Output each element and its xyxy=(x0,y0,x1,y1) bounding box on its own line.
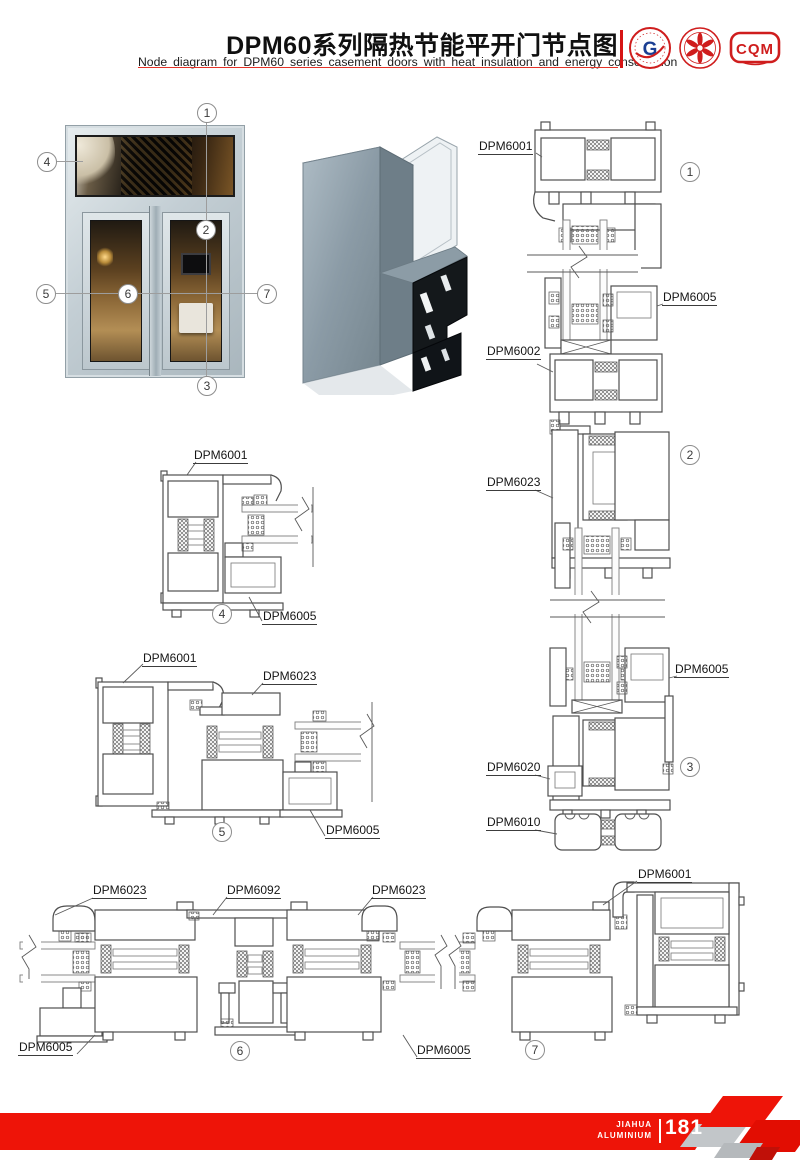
label-h-dpm6005-left: DPM6005 xyxy=(18,1041,73,1056)
brand-line2: ALUMINIUM xyxy=(548,1130,652,1141)
center-stile xyxy=(149,206,161,376)
lattice-ceiling-detail xyxy=(121,137,193,195)
right-door-panel xyxy=(162,212,230,370)
section-callout-3: 3 xyxy=(680,757,700,777)
section-callout-5: 5 xyxy=(212,822,232,842)
detail-5-drawing xyxy=(85,650,405,850)
label-d4-dpm6005: DPM6005 xyxy=(262,610,317,625)
door-overview-photo xyxy=(65,125,245,378)
cqm-logo-text: CQM xyxy=(736,41,774,58)
cqm-logo-icon: CQM xyxy=(728,26,782,70)
label-d5-dpm6005: DPM6005 xyxy=(325,824,380,839)
callout-2: 2 xyxy=(196,220,216,240)
section-callout-4: 4 xyxy=(212,604,232,624)
label-dpm6002: DPM6002 xyxy=(486,345,541,360)
label-dpm6010: DPM6010 xyxy=(486,816,541,831)
left-door-panel xyxy=(82,212,150,370)
profile-3d-render xyxy=(285,125,475,395)
callout-3: 3 xyxy=(197,376,217,396)
callout-line-horizontal xyxy=(56,293,257,294)
label-h-dpm6092: DPM6092 xyxy=(226,884,281,899)
section-callout-1: 1 xyxy=(680,162,700,182)
brand-line1: JIAHUA xyxy=(548,1119,652,1130)
label-d5-dpm6023: DPM6023 xyxy=(262,670,317,685)
label-d4-dpm6001: DPM6001 xyxy=(193,449,248,464)
label-dpm6005-upper: DPM6005 xyxy=(662,291,717,306)
callout-line-4 xyxy=(57,161,83,162)
label-h-dpm6005-right: DPM6005 xyxy=(416,1044,471,1059)
cabinet-detail xyxy=(179,303,213,333)
callout-7: 7 xyxy=(257,284,277,304)
brand-text: JIAHUA ALUMINIUM xyxy=(548,1119,652,1141)
label-dpm6005-lower: DPM6005 xyxy=(674,663,729,678)
ctc-logo-icon: G xyxy=(628,26,672,70)
section-callout-2: 2 xyxy=(680,445,700,465)
transom-glass xyxy=(75,135,235,197)
label-dpm6020: DPM6020 xyxy=(486,761,541,776)
chandelier-detail xyxy=(97,247,113,267)
page-number: 181 xyxy=(665,1116,703,1140)
header-divider xyxy=(620,30,623,68)
callout-1: 1 xyxy=(197,103,217,123)
label-h-dpm6001: DPM6001 xyxy=(637,868,692,883)
callout-line-vertical xyxy=(206,123,207,376)
label-h-dpm6023-right: DPM6023 xyxy=(371,884,426,899)
header-rule xyxy=(138,67,618,68)
catalog-page: { "header": { "title": "DPM60系列隔热节能平开门节点… xyxy=(0,0,800,1167)
callout-5: 5 xyxy=(36,284,56,304)
star-seal-logo-icon xyxy=(678,26,722,70)
footer-divider xyxy=(659,1119,661,1143)
callout-4: 4 xyxy=(37,152,57,172)
callout-6: 6 xyxy=(118,284,138,304)
certification-logos: G CQM xyxy=(628,27,784,69)
label-h-dpm6023-left: DPM6023 xyxy=(92,884,147,899)
label-dpm6023-vert: DPM6023 xyxy=(486,476,541,491)
label-dpm6001-top: DPM6001 xyxy=(478,140,533,155)
right-door-glass xyxy=(170,220,222,362)
section-callout-7: 7 xyxy=(525,1040,545,1060)
detail-4-drawing xyxy=(130,445,360,635)
section-callout-6: 6 xyxy=(230,1041,250,1061)
label-d5-dpm6001: DPM6001 xyxy=(142,652,197,667)
